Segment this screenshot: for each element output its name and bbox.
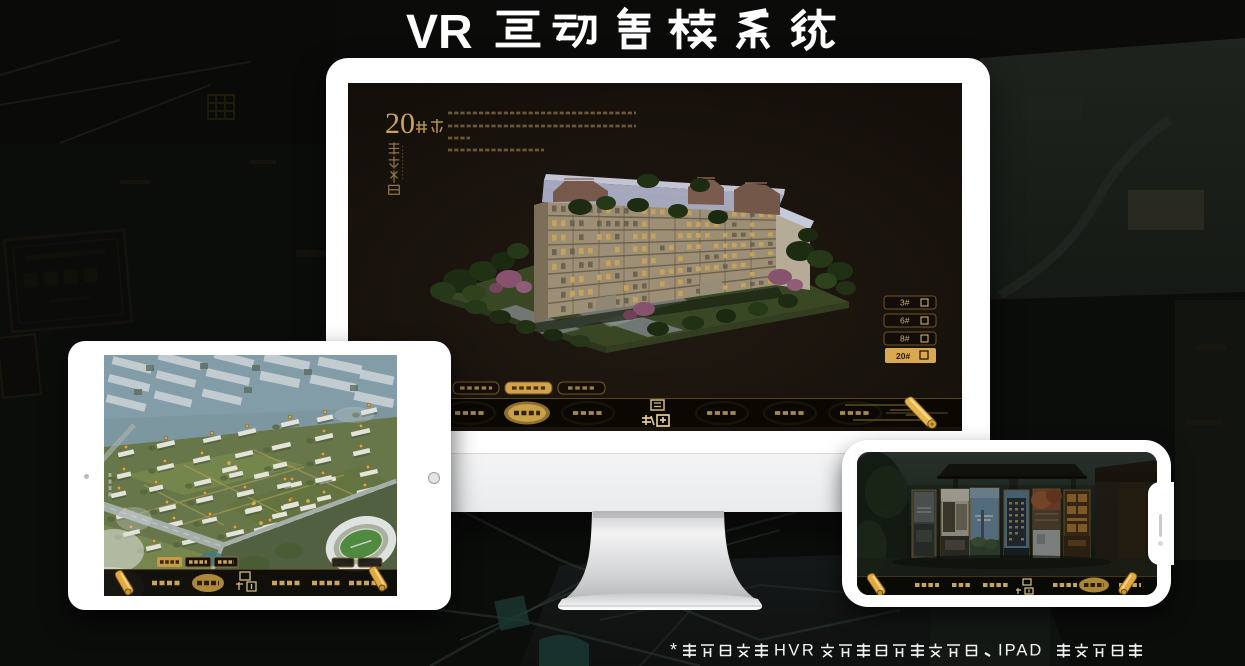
svg-text:*: * (670, 640, 677, 660)
svg-text:VR: VR (406, 6, 473, 56)
svg-text:8#: 8# (900, 334, 910, 344)
svg-text:HVR: HVR (774, 642, 816, 660)
svg-text:IPAD: IPAD (998, 642, 1043, 660)
svg-text:6#: 6# (900, 316, 910, 326)
svg-text:20#: 20# (896, 351, 910, 361)
svg-text:20: 20 (385, 107, 415, 140)
svg-text:3#: 3# (900, 298, 910, 308)
